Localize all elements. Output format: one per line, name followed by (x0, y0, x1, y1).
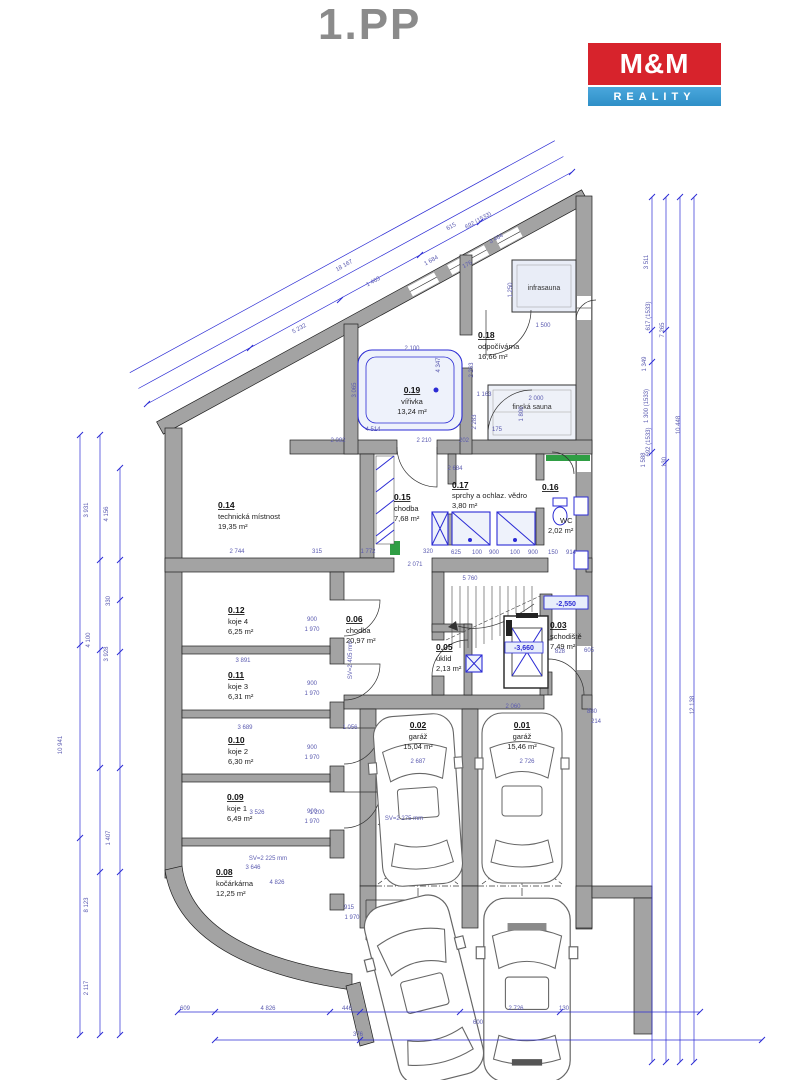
dim-label: 3 511 (644, 254, 650, 269)
window-icon-2 (574, 551, 588, 569)
dim-label: 100 (510, 550, 521, 556)
dim-label: 1 056 (342, 725, 358, 731)
dim-label: 330 (106, 595, 112, 606)
dim-label: SV=2 225 mm (249, 856, 287, 862)
room-016-name: WC (560, 516, 573, 525)
dim-label: 1 772 (360, 549, 376, 555)
dim-label: 3 065 (352, 382, 358, 398)
room-015-name: chodba (394, 504, 419, 513)
room-008-area: 12,25 m² (216, 889, 246, 898)
dim-label: 828 (555, 649, 566, 655)
dim-label: 150 (548, 550, 559, 556)
dim-label: 880 (587, 709, 598, 715)
dim-label: 900 (307, 681, 318, 687)
dim-label: 1 800 (519, 406, 525, 422)
dim-label: 18 167 (335, 259, 355, 273)
room-005-area: 2,13 m² (436, 664, 462, 673)
dim-label: 3 689 (237, 725, 253, 731)
floor-plan-svg: -2,550 -3,660 0.19 vířivka 13,24 m² 0.18… (0, 0, 790, 1080)
dim-label: 900 (528, 550, 539, 556)
dim-label: 2 726 (519, 759, 535, 765)
dim-label: 1 970 (304, 691, 320, 697)
level-marker-stair: -2,550 (544, 596, 588, 609)
dim-label: 900 (489, 550, 500, 556)
dim-label: 100 (472, 550, 483, 556)
dim-label: 2 687 (410, 759, 426, 765)
stair-hatch (376, 456, 394, 544)
dim-label: 1 500 (535, 323, 551, 329)
dim-label: 2 117 (84, 980, 90, 995)
dim-label: 3 646 (245, 865, 261, 871)
dim-label: SV=2 275 mm (385, 816, 423, 822)
dim-label: 900 (307, 617, 318, 623)
dim-label: 609 (180, 1006, 191, 1012)
dim-label: 1 970 (304, 819, 320, 825)
room-008-name: kočárkárna (216, 879, 254, 888)
dim-label: 2 071 (407, 562, 423, 568)
shower-icons (432, 512, 535, 545)
room-010-num: 0.10 (228, 735, 245, 745)
room-011-num: 0.11 (228, 670, 244, 680)
dim-label: 2 263 (469, 362, 475, 378)
dim-label: 2 283 (472, 414, 478, 430)
room-003-name: schodiště (550, 632, 582, 641)
room-014-num: 0.14 (218, 500, 235, 510)
room-005-name: úklid (436, 654, 451, 663)
room-019-num: 0.19 (404, 385, 421, 395)
dim-label: 446 (342, 1006, 353, 1012)
room-010-area: 6,30 m² (228, 757, 254, 766)
dim-label: 10 941 (58, 735, 64, 754)
room-009-name: koje 1 (227, 804, 247, 813)
dim-label: SV=2 405 mm (348, 641, 354, 679)
dim-label: 1 588 (641, 452, 647, 468)
dim-label: 1 970 (304, 627, 320, 633)
room-006-name: chodba (346, 626, 371, 635)
dim-label: 320 (423, 549, 434, 555)
bench-icon (546, 455, 590, 461)
dim-label: 692 (1533) (646, 427, 652, 456)
dim-label: 175 (492, 427, 503, 433)
room-017-num: 0.17 (452, 480, 469, 490)
room-016-area: 2,02 m² (548, 526, 574, 535)
window-icon (574, 497, 588, 515)
dim-label: 900 (307, 809, 318, 815)
dim-label: 12 138 (690, 695, 696, 714)
room-001-area: 15,46 m² (507, 742, 537, 751)
room-015-area: 7,68 m² (394, 514, 420, 523)
room-001-name: garáž (513, 732, 532, 741)
dim-label: 5 232 (291, 323, 308, 336)
room-018-area: 16,66 m² (478, 352, 508, 361)
dim-label: 2 092 (330, 438, 346, 444)
dim-label: 2 060 (505, 704, 521, 710)
room-011-area: 6,31 m² (228, 692, 254, 701)
dim-label: 915 (344, 905, 355, 911)
dim-label: 1 250 (508, 282, 514, 298)
dim-label: 1 463 (365, 276, 382, 289)
dim-label: 7 265 (660, 322, 666, 338)
dim-label: 4 156 (104, 506, 110, 522)
dim-label: 914 (566, 550, 577, 556)
infrasauna-label: infrasauna (528, 285, 561, 292)
room-016-num: 0.16 (542, 482, 559, 492)
dim-label: 600 (473, 1020, 484, 1026)
dim-label: 1 407 (106, 830, 112, 846)
level-stair-value: -2,550 (556, 601, 576, 608)
dim-label: 1 684 (423, 255, 440, 268)
room-014-name: technická místnost (218, 512, 281, 521)
room-012-name: koje 4 (228, 617, 248, 626)
dim-label: 1 970 (344, 915, 360, 921)
sink-icon (466, 655, 482, 672)
dim-label: 3 526 (249, 810, 265, 816)
room-011-name: koje 3 (228, 682, 248, 691)
room-018-name: odpočívárna (478, 342, 520, 351)
level-marker-lift: -3,660 (505, 642, 543, 653)
room-002-name: garáž (409, 732, 428, 741)
dim-label: 214 (591, 719, 602, 725)
room-012-area: 6,25 m² (228, 627, 254, 636)
floorplan-page: 1.PP M&M REALITY (0, 0, 790, 1080)
room-009-num: 0.09 (227, 792, 244, 802)
dim-label: 5 760 (462, 576, 478, 582)
room-012-num: 0.12 (228, 605, 245, 615)
room-002-area: 15,04 m² (403, 742, 433, 751)
dim-label: 615 (446, 222, 458, 232)
dim-label: 1 970 (304, 755, 320, 761)
room-003-num: 0.03 (550, 620, 567, 630)
dim-label: 10 448 (676, 415, 682, 434)
dim-label: 625 (451, 550, 462, 556)
room-005-num: 0.05 (436, 642, 453, 652)
room-014-area: 19,35 m² (218, 522, 248, 531)
dim-label: 376 (353, 1032, 364, 1038)
dim-label: 3 928 (104, 646, 110, 662)
dim-label: 4 347 (436, 357, 442, 373)
dim-label: 692 (1533) (464, 211, 492, 230)
room-017-name: sprchy a ochlaz. vědro (452, 491, 527, 500)
dim-label: 4 826 (260, 1006, 276, 1012)
dim-label: 4 826 (269, 880, 285, 886)
dim-label: 2 684 (447, 466, 463, 472)
room-008-num: 0.08 (216, 867, 233, 877)
dim-label: 2 744 (229, 549, 245, 555)
dim-label: 8 123 (84, 897, 90, 913)
room-019-area: 13,24 m² (397, 407, 427, 416)
dim-label: 1 300 (1533) (644, 389, 650, 423)
dim-label: 3 931 (84, 502, 90, 518)
room-018-num: 0.18 (478, 330, 495, 340)
dim-label: 4 100 (86, 632, 92, 648)
room-002-num: 0.02 (410, 720, 427, 730)
dim-label: 900 (307, 745, 318, 751)
dim-label: 605 (584, 648, 595, 654)
room-017-area: 3,80 m² (452, 501, 478, 510)
dim-label: 2 100 (404, 346, 420, 352)
room-015-num: 0.15 (394, 492, 411, 502)
dim-label: 1 163 (476, 392, 492, 398)
room-019-name: vířivka (401, 397, 423, 406)
dim-label: 2 000 (528, 396, 544, 402)
dim-label: 2 210 (416, 438, 432, 444)
dim-label: 130 (662, 456, 668, 467)
dim-label: 4 514 (365, 427, 381, 433)
level-lift-value: -3,660 (514, 645, 534, 652)
dim-label: 2 726 (508, 1006, 524, 1012)
room-001-num: 0.01 (514, 720, 531, 730)
dim-label: 3 891 (235, 658, 251, 664)
dim-label: 315 (312, 549, 323, 555)
room-010-name: koje 2 (228, 747, 248, 756)
room-006-num: 0.06 (346, 614, 363, 624)
dim-label: 617 (1533) (646, 301, 652, 330)
dim-label: 202 (459, 438, 470, 444)
dim-label: 1 349 (642, 356, 648, 372)
